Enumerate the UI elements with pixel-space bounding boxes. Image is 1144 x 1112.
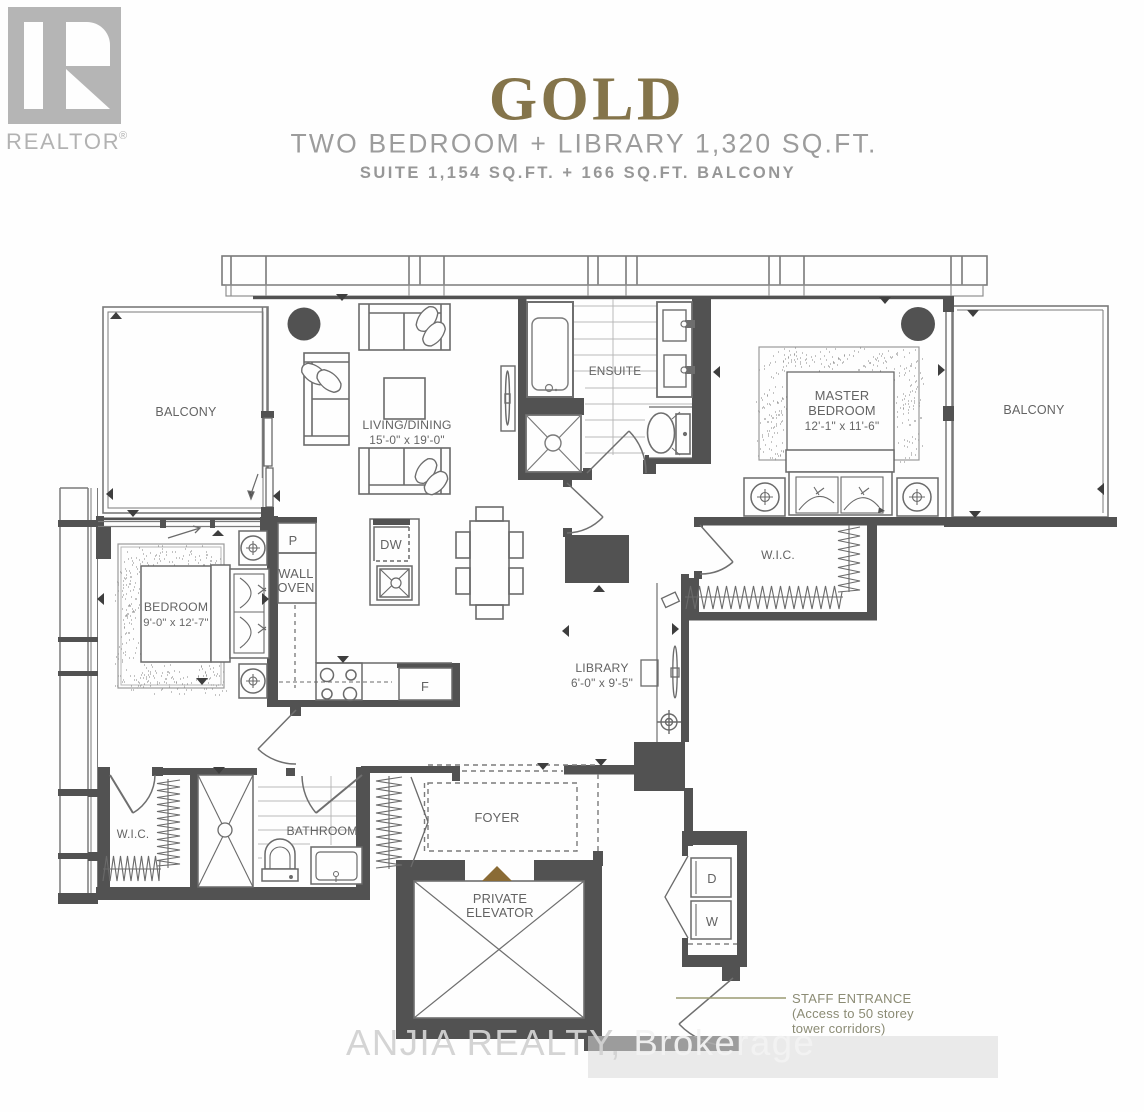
svg-text:15'-0" x 19'-0": 15'-0" x 19'-0" — [369, 433, 445, 447]
svg-text:BATHROOM: BATHROOM — [286, 824, 357, 838]
svg-text:ENSUITE: ENSUITE — [589, 364, 642, 378]
svg-text:W.I.C.: W.I.C. — [117, 829, 150, 841]
svg-text:ELEVATOR: ELEVATOR — [466, 905, 534, 920]
svg-text:F: F — [421, 679, 429, 694]
svg-text:WALL: WALL — [278, 566, 313, 581]
svg-text:BALCONY: BALCONY — [1003, 403, 1065, 417]
svg-text:DW: DW — [380, 537, 402, 552]
svg-text:FOYER: FOYER — [474, 810, 519, 825]
svg-text:MASTER: MASTER — [815, 388, 870, 403]
svg-text:ANJIA REALTY, Brokerage: ANJIA REALTY, Brokerage — [346, 1022, 815, 1063]
svg-text:STAFF ENTRANCE: STAFF ENTRANCE — [792, 991, 912, 1006]
svg-text:D: D — [707, 871, 716, 886]
svg-text:W: W — [706, 914, 719, 929]
svg-text:LIVING/DINING: LIVING/DINING — [362, 418, 451, 432]
svg-text:9'-0" x 12'-7": 9'-0" x 12'-7" — [143, 617, 208, 629]
svg-text:OVEN: OVEN — [277, 580, 314, 595]
svg-text:BEDROOM: BEDROOM — [144, 600, 208, 614]
svg-text:GOLD: GOLD — [489, 66, 685, 134]
svg-text:LIBRARY: LIBRARY — [575, 661, 628, 675]
svg-text:BALCONY: BALCONY — [155, 405, 217, 419]
svg-text:(Access to 50 storey: (Access to 50 storey — [792, 1006, 914, 1021]
svg-text:SUITE 1,154 SQ.FT. + 166 SQ.FT: SUITE 1,154 SQ.FT. + 166 SQ.FT. BALCONY — [360, 164, 796, 182]
svg-text:W.I.C.: W.I.C. — [761, 548, 795, 562]
svg-text:P: P — [289, 533, 298, 548]
svg-text:BEDROOM: BEDROOM — [808, 403, 876, 418]
svg-text:REALTOR: REALTOR — [6, 129, 120, 154]
svg-text:®: ® — [119, 130, 127, 142]
svg-text:6'-0" x 9'-5": 6'-0" x 9'-5" — [571, 676, 633, 690]
svg-text:12'-1" x 11'-6": 12'-1" x 11'-6" — [805, 419, 880, 433]
svg-text:TWO BEDROOM + LIBRARY 1,320 SQ: TWO BEDROOM + LIBRARY 1,320 SQ.FT. — [290, 129, 877, 159]
svg-text:PRIVATE: PRIVATE — [473, 891, 527, 906]
